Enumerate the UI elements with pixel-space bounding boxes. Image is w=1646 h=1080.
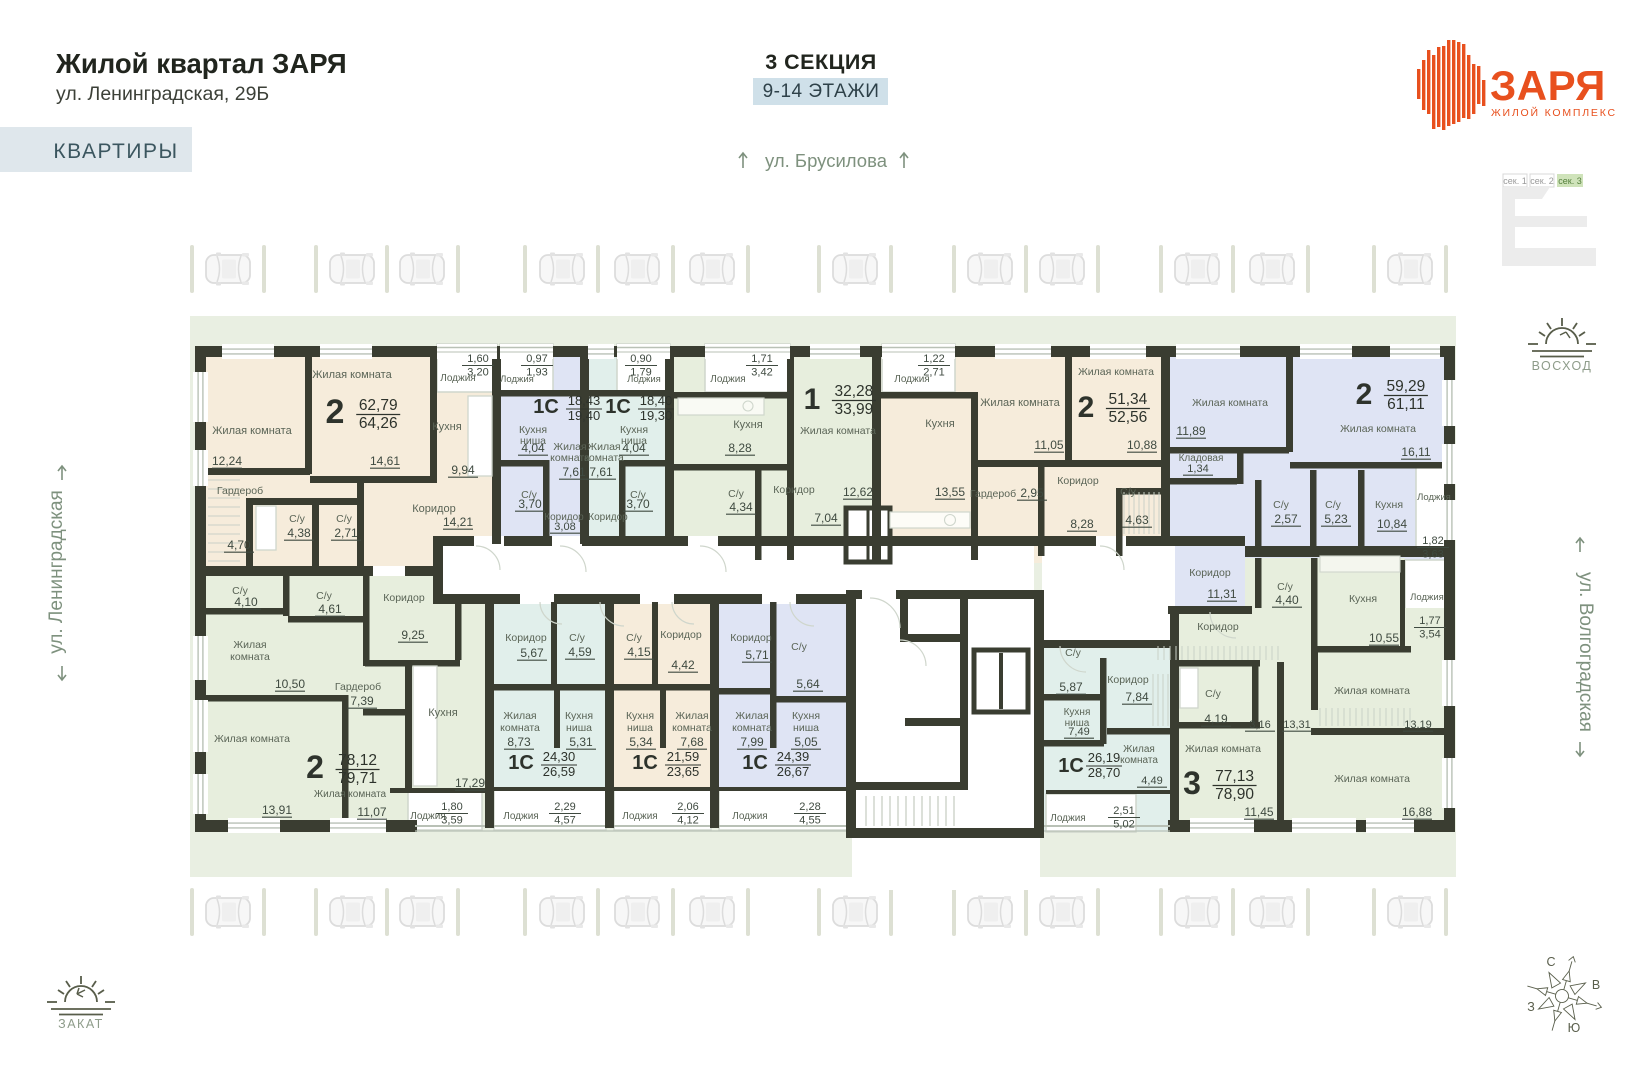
- svg-text:9,94: 9,94: [451, 463, 475, 477]
- svg-text:Кухня: Кухня: [792, 710, 820, 722]
- svg-text:62,79: 62,79: [359, 397, 398, 414]
- svg-text:2,71: 2,71: [923, 367, 944, 379]
- svg-text:Коридор: Коридор: [773, 484, 815, 496]
- svg-text:комната: комната: [500, 722, 540, 734]
- svg-text:3,54: 3,54: [1419, 629, 1440, 641]
- svg-text:ниша: ниша: [627, 722, 653, 734]
- svg-text:ул. Ленинградская, 29Б: ул. Ленинградская, 29Б: [56, 83, 269, 105]
- svg-text:4,55: 4,55: [799, 815, 820, 827]
- svg-text:7,99: 7,99: [740, 735, 764, 749]
- svg-text:комната: комната: [672, 722, 712, 734]
- svg-text:С/у: С/у: [1065, 647, 1082, 659]
- svg-text:3,59: 3,59: [441, 815, 462, 827]
- svg-text:Жилой квартал ЗАРЯ: Жилой квартал ЗАРЯ: [55, 48, 347, 79]
- svg-text:8,73: 8,73: [507, 735, 531, 749]
- svg-text:1,34: 1,34: [1187, 463, 1208, 475]
- svg-text:С/у: С/у: [569, 632, 586, 644]
- svg-text:2: 2: [1356, 378, 1373, 411]
- svg-text:10,84: 10,84: [1377, 517, 1407, 531]
- svg-text:С: С: [1546, 955, 1555, 969]
- svg-text:8,28: 8,28: [1070, 517, 1094, 531]
- svg-text:28,70: 28,70: [1088, 765, 1121, 780]
- svg-text:ниша: ниша: [793, 722, 819, 734]
- svg-text:19,40: 19,40: [568, 408, 601, 423]
- svg-text:7,04: 7,04: [814, 511, 838, 525]
- svg-text:3,42: 3,42: [751, 367, 772, 379]
- svg-text:2,29: 2,29: [554, 801, 575, 813]
- svg-text:сек. 1: сек. 1: [1503, 176, 1526, 186]
- svg-text:Лоджия: Лоджия: [1050, 813, 1085, 824]
- svg-text:Жилая комната: Жилая комната: [312, 369, 392, 381]
- svg-text:2: 2: [1078, 391, 1095, 424]
- svg-text:ниша: ниша: [566, 722, 592, 734]
- svg-text:комната: комната: [230, 651, 270, 663]
- svg-text:61,11: 61,11: [1387, 396, 1425, 413]
- svg-text:Кухня: Кухня: [925, 418, 954, 430]
- svg-text:Жилая комната: Жилая комната: [1334, 773, 1410, 785]
- svg-text:2,71: 2,71: [334, 526, 358, 540]
- svg-text:3: 3: [1183, 765, 1201, 801]
- svg-text:комната: комната: [1120, 755, 1158, 766]
- svg-text:7,61: 7,61: [562, 465, 586, 479]
- svg-text:64,26: 64,26: [359, 415, 398, 432]
- svg-text:Лоджия: Лоджия: [732, 811, 767, 822]
- svg-text:7,39: 7,39: [350, 694, 374, 708]
- svg-text:7,84: 7,84: [1125, 690, 1149, 704]
- svg-text:23,65: 23,65: [667, 764, 700, 779]
- svg-text:5,05: 5,05: [794, 735, 818, 749]
- svg-text:С/у: С/у: [791, 641, 808, 653]
- svg-text:Жилая комната: Жилая комната: [1078, 366, 1154, 378]
- svg-text:Кухня: Кухня: [733, 419, 762, 431]
- svg-text:16,88: 16,88: [1402, 805, 1432, 819]
- svg-text:79,71: 79,71: [338, 770, 377, 787]
- svg-text:13,55: 13,55: [935, 485, 965, 499]
- svg-text:2: 2: [306, 749, 324, 785]
- svg-text:24,30: 24,30: [543, 749, 576, 764]
- svg-text:С/у: С/у: [336, 513, 353, 525]
- svg-text:З: З: [1527, 1000, 1535, 1014]
- svg-text:Лоджия: Лоджия: [710, 374, 745, 385]
- svg-text:8,28: 8,28: [728, 441, 752, 455]
- svg-text:26,19: 26,19: [1088, 750, 1121, 765]
- svg-text:4,59: 4,59: [568, 645, 592, 659]
- svg-text:С/у: С/у: [626, 632, 643, 644]
- svg-text:3,08: 3,08: [554, 521, 575, 533]
- svg-text:7,49: 7,49: [1068, 726, 1089, 738]
- svg-text:1,71: 1,71: [751, 353, 772, 365]
- svg-text:Кухня: Кухня: [1375, 499, 1403, 511]
- svg-text:4,49: 4,49: [1141, 775, 1162, 787]
- svg-text:комната: комната: [584, 452, 624, 464]
- svg-text:2,57: 2,57: [1274, 512, 1298, 526]
- svg-text:5,23: 5,23: [1324, 512, 1348, 526]
- svg-text:Коридор: Коридор: [660, 629, 702, 641]
- svg-text:1,82: 1,82: [1422, 535, 1443, 547]
- svg-text:С/у: С/у: [1325, 499, 1342, 511]
- svg-text:32,28: 32,28: [835, 383, 874, 400]
- svg-text:Кухня: Кухня: [432, 421, 461, 433]
- svg-text:5,02: 5,02: [1113, 819, 1134, 831]
- svg-text:С/у: С/у: [728, 488, 745, 500]
- svg-text:Коридор: Коридор: [1197, 621, 1239, 633]
- svg-text:Коридор: Коридор: [1189, 567, 1231, 579]
- svg-text:С/у: С/у: [1205, 688, 1222, 700]
- svg-text:11,89: 11,89: [1176, 424, 1205, 438]
- svg-text:10,88: 10,88: [1127, 438, 1157, 452]
- svg-text:4,10: 4,10: [234, 595, 258, 609]
- svg-text:52,56: 52,56: [1109, 409, 1148, 426]
- svg-text:Лоджия: Лоджия: [622, 811, 657, 822]
- svg-text:1,77: 1,77: [1419, 615, 1440, 627]
- svg-text:Коридор: Коридор: [383, 592, 425, 604]
- svg-text:Коридор: Коридор: [505, 632, 547, 644]
- svg-text:13,19: 13,19: [1404, 719, 1432, 731]
- svg-text:10,55: 10,55: [1369, 631, 1399, 645]
- svg-text:ВОСХОД: ВОСХОД: [1532, 359, 1593, 373]
- svg-text:Лоджия: Лоджия: [1417, 492, 1451, 503]
- svg-text:3,70: 3,70: [518, 497, 542, 511]
- svg-text:1С: 1С: [605, 396, 631, 418]
- svg-text:5,71: 5,71: [745, 648, 769, 662]
- svg-text:3 СЕКЦИЯ: 3 СЕКЦИЯ: [765, 50, 877, 74]
- svg-text:51,34: 51,34: [1109, 391, 1148, 408]
- svg-text:Кухня: Кухня: [626, 710, 654, 722]
- svg-text:11,05: 11,05: [1034, 438, 1063, 452]
- svg-text:4,38: 4,38: [287, 526, 311, 540]
- svg-text:1С: 1С: [533, 396, 559, 418]
- svg-text:4,61: 4,61: [318, 602, 342, 616]
- svg-text:ЗАРЯ: ЗАРЯ: [1490, 62, 1606, 109]
- svg-text:4,34: 4,34: [729, 500, 753, 514]
- svg-text:Коридор: Коридор: [588, 512, 628, 523]
- svg-text:ЗАКАТ: ЗАКАТ: [58, 1017, 104, 1031]
- svg-text:ул. Волгоградская: ул. Волгоградская: [1575, 572, 1596, 732]
- svg-text:Жилая комната: Жилая комната: [1185, 743, 1261, 755]
- svg-text:3,70: 3,70: [626, 497, 650, 511]
- svg-text:Коридор: Коридор: [1057, 475, 1099, 487]
- svg-text:Жилая комната: Жилая комната: [1334, 685, 1410, 697]
- svg-text:11,07: 11,07: [357, 805, 386, 819]
- svg-text:78,12: 78,12: [338, 752, 377, 769]
- svg-text:1,93: 1,93: [526, 367, 547, 379]
- svg-text:4,40: 4,40: [1275, 593, 1299, 607]
- svg-text:16,11: 16,11: [1401, 445, 1430, 459]
- svg-text:Жилая комната: Жилая комната: [212, 425, 292, 437]
- svg-text:0,90: 0,90: [630, 353, 651, 365]
- svg-text:13,91: 13,91: [262, 803, 292, 817]
- svg-text:2,51: 2,51: [1113, 805, 1134, 817]
- svg-text:Жилая: Жилая: [233, 639, 266, 651]
- svg-text:5,87: 5,87: [1059, 680, 1083, 694]
- svg-text:Ю: Ю: [1568, 1021, 1581, 1035]
- svg-text:3,20: 3,20: [467, 367, 488, 379]
- svg-text:12,24: 12,24: [212, 454, 242, 468]
- svg-text:1,80: 1,80: [441, 801, 462, 813]
- svg-text:Гардероб: Гардероб: [970, 488, 1016, 500]
- svg-text:4,04: 4,04: [521, 441, 545, 455]
- svg-text:Гардероб: Гардероб: [217, 485, 263, 497]
- svg-text:21,59: 21,59: [667, 749, 700, 764]
- svg-text:4,70: 4,70: [227, 538, 251, 552]
- svg-text:комната: комната: [732, 722, 772, 734]
- svg-text:4,57: 4,57: [554, 815, 575, 827]
- svg-text:3,63: 3,63: [1422, 549, 1443, 561]
- svg-text:С/у: С/у: [1273, 499, 1290, 511]
- svg-text:Лоджия: Лоджия: [503, 811, 538, 822]
- svg-text:2,28: 2,28: [799, 801, 820, 813]
- svg-text:КВАРТИРЫ: КВАРТИРЫ: [53, 140, 178, 163]
- svg-text:Жилая: Жилая: [1123, 744, 1155, 755]
- svg-text:Жилая комната: Жилая комната: [800, 425, 876, 437]
- svg-text:1: 1: [804, 383, 821, 416]
- svg-text:0,97: 0,97: [526, 353, 547, 365]
- svg-text:Жилая: Жилая: [503, 710, 536, 722]
- svg-text:9,25: 9,25: [401, 628, 425, 642]
- svg-text:33,99: 33,99: [835, 401, 874, 418]
- svg-text:19,30: 19,30: [640, 408, 673, 423]
- svg-text:4,63: 4,63: [1125, 513, 1149, 527]
- svg-text:С/у: С/у: [1277, 581, 1294, 593]
- svg-text:14,21: 14,21: [443, 515, 473, 529]
- svg-text:С/у: С/у: [289, 513, 306, 525]
- svg-text:Жилая: Жилая: [675, 710, 708, 722]
- svg-text:4,19: 4,19: [1204, 712, 1228, 726]
- svg-text:1С: 1С: [508, 752, 534, 774]
- svg-text:Кухня: Кухня: [1349, 593, 1377, 605]
- svg-text:Кухня: Кухня: [565, 710, 593, 722]
- svg-text:4,12: 4,12: [677, 815, 698, 827]
- svg-text:сек. 2: сек. 2: [1530, 176, 1553, 186]
- svg-text:1,60: 1,60: [467, 353, 488, 365]
- svg-text:26,59: 26,59: [543, 764, 576, 779]
- svg-text:сек. 3: сек. 3: [1558, 176, 1581, 186]
- svg-text:13,31: 13,31: [1283, 719, 1311, 731]
- svg-text:ЖИЛОЙ КОМПЛЕКС: ЖИЛОЙ КОМПЛЕКС: [1491, 106, 1617, 119]
- svg-text:1С: 1С: [632, 752, 658, 774]
- svg-text:1,22: 1,22: [923, 353, 944, 365]
- svg-text:1С: 1С: [1058, 755, 1084, 777]
- svg-text:5,67: 5,67: [520, 646, 544, 660]
- svg-text:24,39: 24,39: [777, 749, 810, 764]
- svg-text:3,16: 3,16: [1249, 719, 1270, 731]
- svg-text:Коридор: Коридор: [730, 632, 772, 644]
- svg-text:7,61: 7,61: [589, 465, 613, 479]
- svg-text:2: 2: [326, 393, 345, 431]
- svg-text:Кухня: Кухня: [428, 707, 457, 719]
- svg-text:26,67: 26,67: [777, 764, 810, 779]
- svg-text:10,50: 10,50: [275, 677, 305, 691]
- svg-text:Кухня: Кухня: [1064, 707, 1091, 718]
- svg-text:Жилая комната: Жилая комната: [1340, 423, 1416, 435]
- svg-text:1,79: 1,79: [630, 367, 651, 379]
- svg-text:Лоджия: Лоджия: [1410, 592, 1444, 603]
- svg-text:7,68: 7,68: [680, 735, 704, 749]
- svg-text:Коридор: Коридор: [412, 503, 455, 515]
- svg-text:59,29: 59,29: [1387, 378, 1426, 395]
- svg-text:78,90: 78,90: [1215, 786, 1254, 803]
- svg-text:5,34: 5,34: [629, 735, 653, 749]
- svg-text:11,45: 11,45: [1244, 805, 1273, 819]
- svg-text:18,40: 18,40: [640, 393, 673, 408]
- svg-text:Жилая комната: Жилая комната: [980, 397, 1060, 409]
- svg-text:11,31: 11,31: [1207, 587, 1236, 601]
- svg-text:ул. Брусилова: ул. Брусилова: [765, 150, 888, 171]
- svg-text:18,43: 18,43: [568, 393, 601, 408]
- svg-text:4,15: 4,15: [627, 645, 651, 659]
- svg-text:Гардероб: Гардероб: [335, 681, 381, 693]
- svg-text:12,62: 12,62: [843, 485, 873, 499]
- svg-text:ул. Ленинградская: ул. Ленинградская: [46, 490, 67, 654]
- svg-text:Жилая комната: Жилая комната: [314, 789, 387, 800]
- svg-text:Коридор: Коридор: [1107, 674, 1149, 686]
- svg-text:5,64: 5,64: [796, 677, 820, 691]
- svg-text:В: В: [1592, 978, 1600, 992]
- svg-text:2,06: 2,06: [677, 801, 698, 813]
- svg-text:Жилая комната: Жилая комната: [1192, 397, 1268, 409]
- svg-text:17,29: 17,29: [455, 776, 485, 790]
- svg-text:1С: 1С: [742, 752, 768, 774]
- svg-text:14,61: 14,61: [370, 454, 400, 468]
- svg-text:Жилая: Жилая: [735, 710, 768, 722]
- svg-text:4,42: 4,42: [671, 658, 695, 672]
- svg-text:2,95: 2,95: [1020, 486, 1044, 500]
- svg-text:С/у: С/у: [316, 590, 333, 602]
- svg-text:9-14 ЭТАЖИ: 9-14 ЭТАЖИ: [763, 81, 880, 102]
- svg-text:5,31: 5,31: [569, 735, 593, 749]
- svg-text:Жилая комната: Жилая комната: [214, 733, 290, 745]
- svg-text:77,13: 77,13: [1215, 768, 1254, 785]
- svg-text:С/у: С/у: [1120, 486, 1137, 498]
- svg-text:4,04: 4,04: [622, 441, 646, 455]
